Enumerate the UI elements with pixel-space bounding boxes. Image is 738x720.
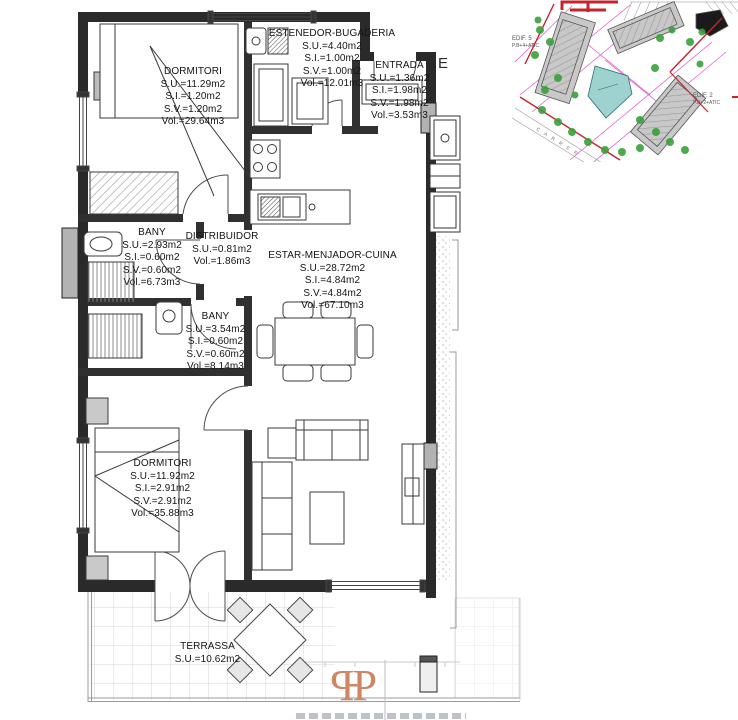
site-plan-inset: EDIF. 2 P.B+2+ATIC EDIF. 5 P.B+4+ATIC C … — [510, 0, 738, 162]
plan-edge-label: E — [438, 55, 448, 72]
room-label-dormitori-1: DORMITORI S.U.=11.29m2 S.I.=1.20m2 S.V.=… — [118, 66, 268, 129]
room-label-bany-2: BANY S.U.=3.54m2 S.I.=0.60m2 S.V.=0.60m2… — [168, 311, 263, 374]
room-name: TERRASSA — [155, 641, 260, 654]
room-name: DORMITORI — [118, 66, 268, 79]
site-pool — [588, 66, 632, 118]
living-room-furniture — [252, 420, 424, 570]
site-street — [512, 108, 610, 162]
logo-subtext-clipped — [296, 713, 466, 719]
terrace-furniture — [227, 597, 312, 682]
logo-glyph-right: P — [352, 662, 376, 710]
brand-logo: P - P — [330, 660, 420, 712]
site-label-edif5: EDIF. 5 — [512, 36, 532, 42]
room-label-estar: ESTAR-MENJADOR-CUINA S.U.=28.72m2 S.I.=4… — [250, 250, 415, 313]
floorplan-page: { "plan": { "rooms": [ {"name":"DORMITOR… — [0, 0, 738, 720]
logo-glyph-left: P — [330, 662, 354, 710]
site-label-edif2: EDIF. 2 — [693, 93, 713, 99]
room-label-terrassa: TERRASSA S.U.=10.62m2 — [155, 641, 260, 666]
room-name: DORMITORI — [105, 458, 220, 471]
room-name: DISTRIBUIDOR — [176, 231, 268, 244]
site-label-edif2-floors: P.B+2+ATIC — [693, 100, 720, 106]
site-buildings — [535, 2, 728, 155]
room-name: ESTAR-MENJADOR-CUINA — [250, 250, 415, 263]
room-name: ENTRADA — [352, 60, 447, 73]
room-label-entrada: ENTRADA S.U.=1.36m2 S.I.=1.98m2 S.V.=1.9… — [352, 60, 447, 123]
site-label-edif5-floors: P.B+4+ATIC — [512, 43, 539, 49]
room-name: ESTENEDOR-BUGADERIA — [252, 28, 412, 41]
dining-set — [257, 302, 373, 381]
room-name: BANY — [168, 311, 263, 324]
room-label-dormitori-2: DORMITORI S.U.=11.92m2 S.I.=2.91m2 S.V.=… — [105, 458, 220, 521]
